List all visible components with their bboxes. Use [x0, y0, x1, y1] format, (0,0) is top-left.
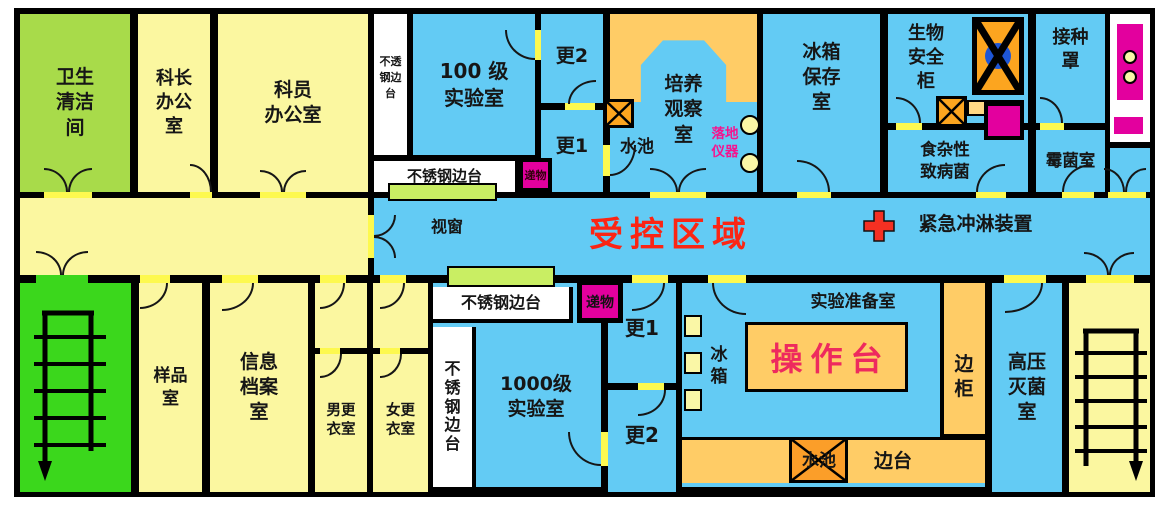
lab-floor-plan: 卫生 清洁 间 科长 办公 室 科员 办公室 不透 钢边 台 100 级 实验室… — [0, 0, 1169, 506]
room-lab1000-label: 1000级 实验室 — [478, 372, 594, 421]
instrument-circle-icon — [740, 153, 760, 173]
bench-bottom-v-label: 不 锈 钢 边 台 — [444, 360, 460, 454]
door-threshold — [708, 275, 746, 283]
pass-through-top-label: 递物 — [525, 167, 547, 183]
worktop-bench: 操作台 — [745, 322, 908, 392]
pass-through-box-bottom: 递物 — [577, 280, 623, 323]
door-threshold — [565, 103, 595, 110]
bench-bottom-h-label: 不锈钢边台 — [461, 292, 541, 313]
instrument-circle-icon — [1123, 70, 1137, 84]
pass-through-box-top: 递物 — [519, 158, 552, 192]
window-strip — [388, 183, 497, 201]
side-bench-label: 边台 — [858, 449, 928, 474]
sink-icon-biosafety — [936, 96, 967, 127]
door-threshold — [1004, 275, 1046, 283]
room-fridge-storage-label: 冰箱 保存 室 — [802, 40, 840, 115]
door-threshold — [380, 275, 406, 283]
door-threshold — [650, 192, 706, 198]
room-female-changing-label: 女更 衣室 — [386, 402, 415, 440]
room-fridge-storage: 冰箱 保存 室 — [763, 14, 880, 192]
room-male-changing: 男更 衣室 — [315, 283, 367, 492]
room-sample: 样品 室 — [139, 283, 202, 492]
stairwell-left — [20, 283, 131, 492]
room-lab100-label: 100 级 实验室 — [440, 58, 509, 111]
room-staff-label: 科员 办公室 — [264, 78, 321, 128]
room-archive: 信息 档案 室 — [210, 283, 308, 492]
door-threshold — [1108, 192, 1146, 198]
instrument-circle-icon — [1123, 50, 1137, 64]
room-archive-label: 信息 档案 室 — [240, 350, 278, 425]
door-threshold — [140, 275, 170, 283]
instrument-circle-icon — [740, 115, 760, 135]
door-threshold — [632, 275, 668, 283]
biosafety-cabinet-icon — [972, 17, 1024, 95]
bench-top-left-vertical: 不透 钢边 台 — [374, 14, 407, 155]
biosafety-label: 生物 安全 柜 — [908, 22, 944, 93]
sink-top-label: 水池 — [612, 136, 662, 158]
door-threshold — [44, 192, 92, 198]
bench-bottom-vertical: 不 锈 钢 边 台 — [433, 327, 476, 487]
stairwell-right — [1069, 283, 1150, 492]
room-male-changing-label: 男更 衣室 — [327, 402, 356, 440]
door-threshold — [36, 275, 88, 283]
bench-bottom-horizontal: 不锈钢边台 — [433, 287, 573, 323]
side-cabinet-label: 边 柜 — [948, 352, 980, 401]
door-threshold — [1062, 192, 1094, 198]
room-autoclave-label: 高压 灭菌 室 — [1008, 350, 1046, 425]
room-foodborne-label: 食杂性 致病菌 — [920, 139, 970, 183]
door-threshold — [896, 123, 922, 130]
worktop-label: 操作台 — [762, 334, 890, 380]
room-geng2-bottom-label: 更2 — [625, 422, 659, 448]
staircase-icon — [1075, 321, 1147, 486]
sink-bottom-label: 水池 — [794, 450, 844, 472]
pass-through-bottom-label: 递物 — [586, 292, 614, 312]
fridge-icon — [684, 389, 702, 411]
room-female-changing: 女更 衣室 — [373, 283, 428, 492]
door-threshold — [603, 145, 610, 176]
room-sample-label: 样品 室 — [154, 365, 188, 410]
door-threshold — [976, 192, 1006, 198]
staircase-icon — [32, 301, 112, 486]
door-threshold — [190, 192, 212, 198]
room-prep-label: 实验准备室 — [768, 291, 938, 313]
window-strip — [447, 266, 555, 287]
door-threshold — [1086, 275, 1134, 283]
room-geng1-top-label: 更1 — [556, 134, 588, 159]
door-threshold — [797, 192, 831, 198]
room-staff-office: 科员 办公室 — [218, 14, 368, 192]
room-chief-office: 科长 办公 室 — [138, 14, 210, 192]
pass-cabinet-box — [984, 102, 1024, 140]
fridge-icon — [684, 315, 702, 337]
emergency-shower-icon — [862, 209, 896, 243]
emergency-shower-label: 紧急冲淋装置 — [903, 212, 1048, 237]
door-threshold — [320, 275, 346, 283]
door-threshold — [638, 383, 664, 390]
door-threshold — [222, 275, 258, 283]
room-hygiene-cleaning: 卫生 清洁 间 — [20, 14, 130, 192]
room-autoclave: 高压 灭菌 室 — [992, 283, 1062, 492]
room-culture-label: 培养 观察 室 — [664, 72, 702, 147]
room-inoculation-label: 接种 罩 — [1053, 26, 1089, 74]
sink-icon-top — [604, 99, 634, 128]
room-geng1-bottom-label: 更1 — [625, 315, 659, 341]
door-threshold — [535, 30, 541, 60]
fridge-icon — [684, 352, 702, 374]
fridge-label: 冰 箱 — [704, 344, 734, 388]
small-cabinet-icon — [1114, 117, 1143, 134]
door-threshold — [601, 432, 608, 466]
door-threshold — [1040, 123, 1064, 130]
room-geng2-top-label: 更2 — [556, 44, 588, 69]
bench-top-left-label: 不透 钢边 台 — [380, 54, 402, 102]
room-chief-label: 科长 办公 室 — [156, 67, 192, 138]
door-threshold — [260, 192, 306, 198]
window-label: 视窗 — [412, 217, 482, 238]
room-hygiene-label: 卫生 清洁 间 — [56, 65, 94, 140]
controlled-area-label: 受控区域 — [566, 213, 776, 257]
